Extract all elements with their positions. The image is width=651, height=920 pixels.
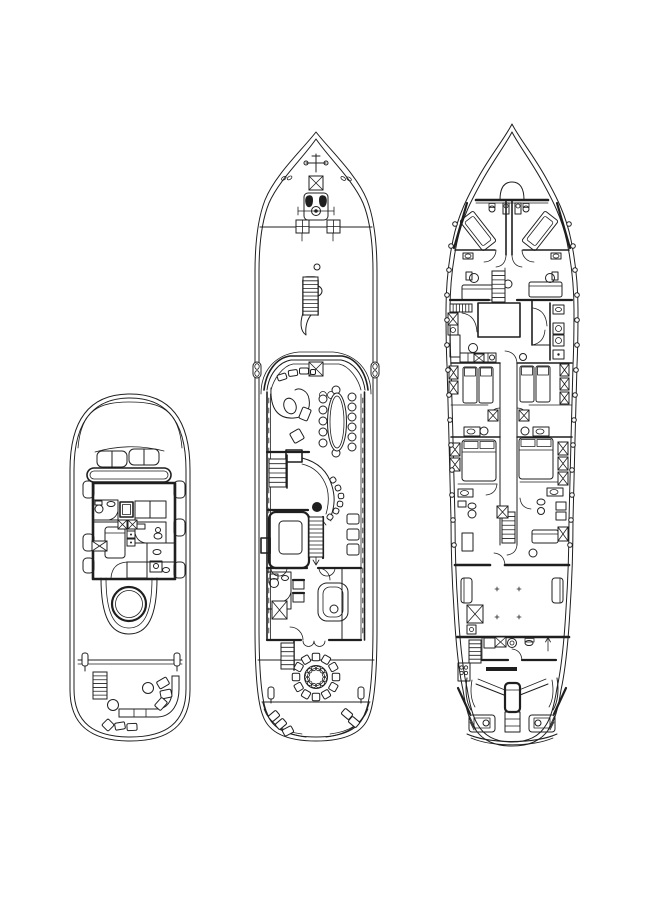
bar-stool — [326, 513, 334, 521]
lower-deck-plan — [446, 124, 578, 746]
superstructure — [253, 352, 379, 640]
oval-dining-table — [319, 386, 356, 457]
deck-chair — [288, 369, 298, 376]
bed — [462, 285, 495, 300]
hatch-icon — [449, 366, 458, 379]
bed — [536, 366, 550, 402]
hatch-icon — [128, 520, 137, 529]
dining-chair — [348, 403, 356, 411]
hatch-icon — [560, 392, 569, 404]
counter — [484, 638, 495, 648]
bar-stool — [337, 501, 343, 507]
deckhouse — [83, 481, 185, 579]
hatch-icon — [560, 364, 569, 376]
windscreen — [87, 468, 171, 482]
dining-chair — [328, 662, 338, 672]
washer-icon — [556, 338, 562, 344]
dining-chair — [319, 395, 327, 403]
hull-frame-dot — [572, 418, 577, 423]
cleat-icon — [82, 653, 88, 671]
crew-berth — [460, 211, 497, 251]
deck-chair — [127, 723, 137, 731]
bed — [529, 282, 562, 297]
hull-frame-dot — [447, 393, 452, 398]
sink-icon — [533, 427, 549, 436]
dining-chair — [301, 689, 311, 699]
dining-chair — [328, 682, 338, 692]
dining-chair — [301, 655, 311, 665]
mooring-bitt-icon — [327, 220, 340, 233]
spa-pool-surround — [101, 578, 157, 634]
deck-chair — [114, 722, 125, 731]
berth — [532, 530, 558, 543]
hatch-icon — [474, 354, 484, 362]
dining-chair — [292, 673, 300, 681]
tank — [552, 578, 563, 603]
dining-chair — [319, 417, 327, 425]
deck-plans-canvas — [0, 0, 651, 920]
hatch-icon — [558, 472, 568, 485]
cocktail-table — [143, 683, 154, 694]
dining-chair — [294, 682, 304, 692]
hatch-icon — [497, 506, 508, 518]
hull-frame-dot — [447, 268, 452, 273]
hatch-icon — [558, 442, 568, 455]
sofa-forward — [135, 501, 166, 518]
pillar-mark — [517, 615, 521, 619]
toilet-icon — [546, 274, 555, 283]
hatch-icon — [272, 601, 287, 619]
up-arrow-icon — [546, 638, 551, 652]
forepeak — [454, 182, 570, 267]
dining-chair — [348, 413, 356, 421]
hull-frame-dot — [450, 493, 455, 498]
louvre-locker — [450, 304, 472, 312]
sink-icon — [137, 524, 145, 529]
hull-frame-dot — [575, 318, 580, 323]
shower-cabin — [120, 502, 133, 517]
sink-icon — [107, 502, 115, 507]
toilet-icon — [95, 501, 102, 505]
hull-frame-dot — [570, 493, 575, 498]
pillar-mark — [517, 587, 521, 591]
toilet-icon — [537, 499, 545, 505]
sink-icon — [525, 641, 533, 646]
hull-frame-dot — [569, 518, 574, 523]
hull-frame-dot — [449, 443, 454, 448]
crew-berth — [522, 211, 559, 251]
cleat-icon — [358, 687, 364, 703]
hull-frame-dot — [448, 418, 453, 423]
hull-frame-dot — [445, 293, 450, 298]
toilet-icon — [154, 533, 162, 539]
stairs-ladder — [281, 643, 294, 669]
hatch-icon — [558, 457, 568, 470]
deck-chair — [102, 719, 115, 732]
hatch-icon — [92, 541, 107, 551]
sun-deck-plan — [70, 394, 190, 741]
stairs-ladder — [93, 672, 107, 699]
stairs-ladder — [469, 640, 481, 663]
double-bed — [519, 438, 553, 479]
bar-stool — [329, 476, 337, 484]
bathroom-forward — [93, 500, 118, 522]
toilet-icon — [521, 427, 529, 435]
bar-stool — [335, 485, 342, 492]
deck-chair — [300, 368, 309, 374]
dining-chair — [319, 428, 327, 436]
hatch-icon — [558, 527, 568, 541]
dining-chair — [348, 433, 356, 441]
lounge-side-seats — [347, 514, 359, 555]
hatch-icon — [118, 520, 127, 529]
main-deck-plan — [253, 132, 379, 741]
galley-island — [478, 303, 520, 337]
dining-chair — [294, 662, 304, 672]
dining-chair — [312, 693, 320, 701]
twin-cabins — [451, 363, 572, 437]
hull-frame-dot — [573, 393, 578, 398]
cabin-aft — [147, 543, 175, 573]
hatch-icon — [309, 176, 323, 190]
hall-seats — [293, 580, 304, 602]
hull-frame-dot — [451, 518, 456, 523]
hull-frame-dot — [570, 468, 575, 473]
toilet-icon — [480, 427, 488, 435]
toilet-icon — [508, 639, 517, 648]
stairs-ladder — [492, 271, 505, 302]
deck-hatch — [469, 715, 495, 732]
double-bed — [462, 440, 496, 481]
dining-chair — [319, 439, 327, 447]
pillar-mark — [495, 615, 499, 619]
dining-chair — [312, 653, 320, 661]
deck-chair — [311, 370, 316, 375]
sink-icon — [464, 427, 480, 436]
bed — [463, 367, 477, 403]
stairs-ladder — [303, 277, 318, 315]
hatch-icon — [519, 410, 529, 421]
hull-frame-dot — [575, 343, 580, 348]
sink-icon — [153, 550, 161, 555]
deck-chair — [289, 428, 304, 443]
hull-frame-dot — [445, 318, 450, 323]
toilet-icon — [95, 505, 103, 513]
counter-bar — [486, 667, 517, 671]
bed — [479, 367, 493, 403]
dining-chair — [348, 443, 356, 451]
stern-platform — [467, 712, 557, 745]
double-cabins — [451, 437, 572, 520]
toilet-icon — [468, 503, 476, 509]
deck-chair — [299, 407, 312, 421]
hatch-icon — [467, 605, 483, 623]
hull-frame-dot — [450, 468, 455, 473]
anchor-windlass-icon — [304, 154, 328, 172]
bed — [520, 366, 534, 402]
bollard-icon — [371, 362, 379, 378]
hull-frame-dot — [446, 368, 451, 373]
helm-seat-pads — [95, 447, 164, 467]
bathroom-aft — [135, 522, 166, 543]
locker-stack — [127, 531, 135, 546]
hull-frame-dot — [567, 222, 572, 227]
fairlead-icon — [281, 173, 293, 184]
stairs-ladder — [309, 517, 323, 557]
hatch-icon — [495, 637, 506, 647]
hull-frame-dot — [571, 443, 576, 448]
hull-frame-dot — [449, 244, 454, 249]
mess-table — [505, 683, 520, 712]
yacht-deck-plans-drawing — [0, 0, 651, 920]
cocktail-table — [108, 700, 119, 711]
hull-frame-dot — [575, 293, 580, 298]
sink-icon — [282, 576, 289, 581]
helm-chair — [282, 396, 299, 415]
deck-chair — [156, 677, 170, 689]
hatch-icon — [488, 410, 498, 421]
dining-chair — [332, 673, 340, 681]
cleat-icon — [174, 653, 180, 671]
cocktail-table — [312, 502, 322, 512]
hull-outline — [255, 132, 377, 741]
bollard-icon — [253, 362, 261, 378]
tank — [461, 578, 472, 603]
dining-chair — [321, 689, 331, 699]
toilet-icon — [469, 344, 478, 353]
hull-frame-dot — [571, 244, 576, 249]
hull-frame-dot — [574, 368, 579, 373]
hull-frame-dot — [452, 543, 457, 548]
counter — [450, 335, 460, 357]
dining-chair — [348, 393, 356, 401]
hatch-icon — [560, 378, 569, 390]
dining-chair — [321, 655, 331, 665]
winch-icon — [298, 193, 334, 220]
bar-stool — [338, 493, 344, 499]
hull-frame-dot — [573, 268, 578, 273]
hull-frame-dot — [445, 343, 450, 348]
aft-stateroom — [318, 568, 348, 640]
spa-pool — [112, 587, 146, 621]
pillar-mark — [495, 587, 499, 591]
hull-frame-dot — [453, 222, 458, 227]
mooring-bitt-icon — [296, 220, 309, 233]
bed — [105, 527, 125, 558]
dining-chair — [348, 423, 356, 431]
toilet-icon — [470, 274, 479, 283]
cleat-icon — [268, 687, 274, 703]
dining-chair — [319, 406, 327, 414]
engine-room — [455, 553, 569, 637]
generated-fittings — [92, 176, 579, 736]
hull-frame-dot — [568, 543, 573, 548]
washer-icon — [556, 326, 562, 332]
hatch-icon — [449, 381, 458, 394]
deck-hatch — [529, 715, 555, 732]
stairs-ladder — [269, 459, 286, 487]
